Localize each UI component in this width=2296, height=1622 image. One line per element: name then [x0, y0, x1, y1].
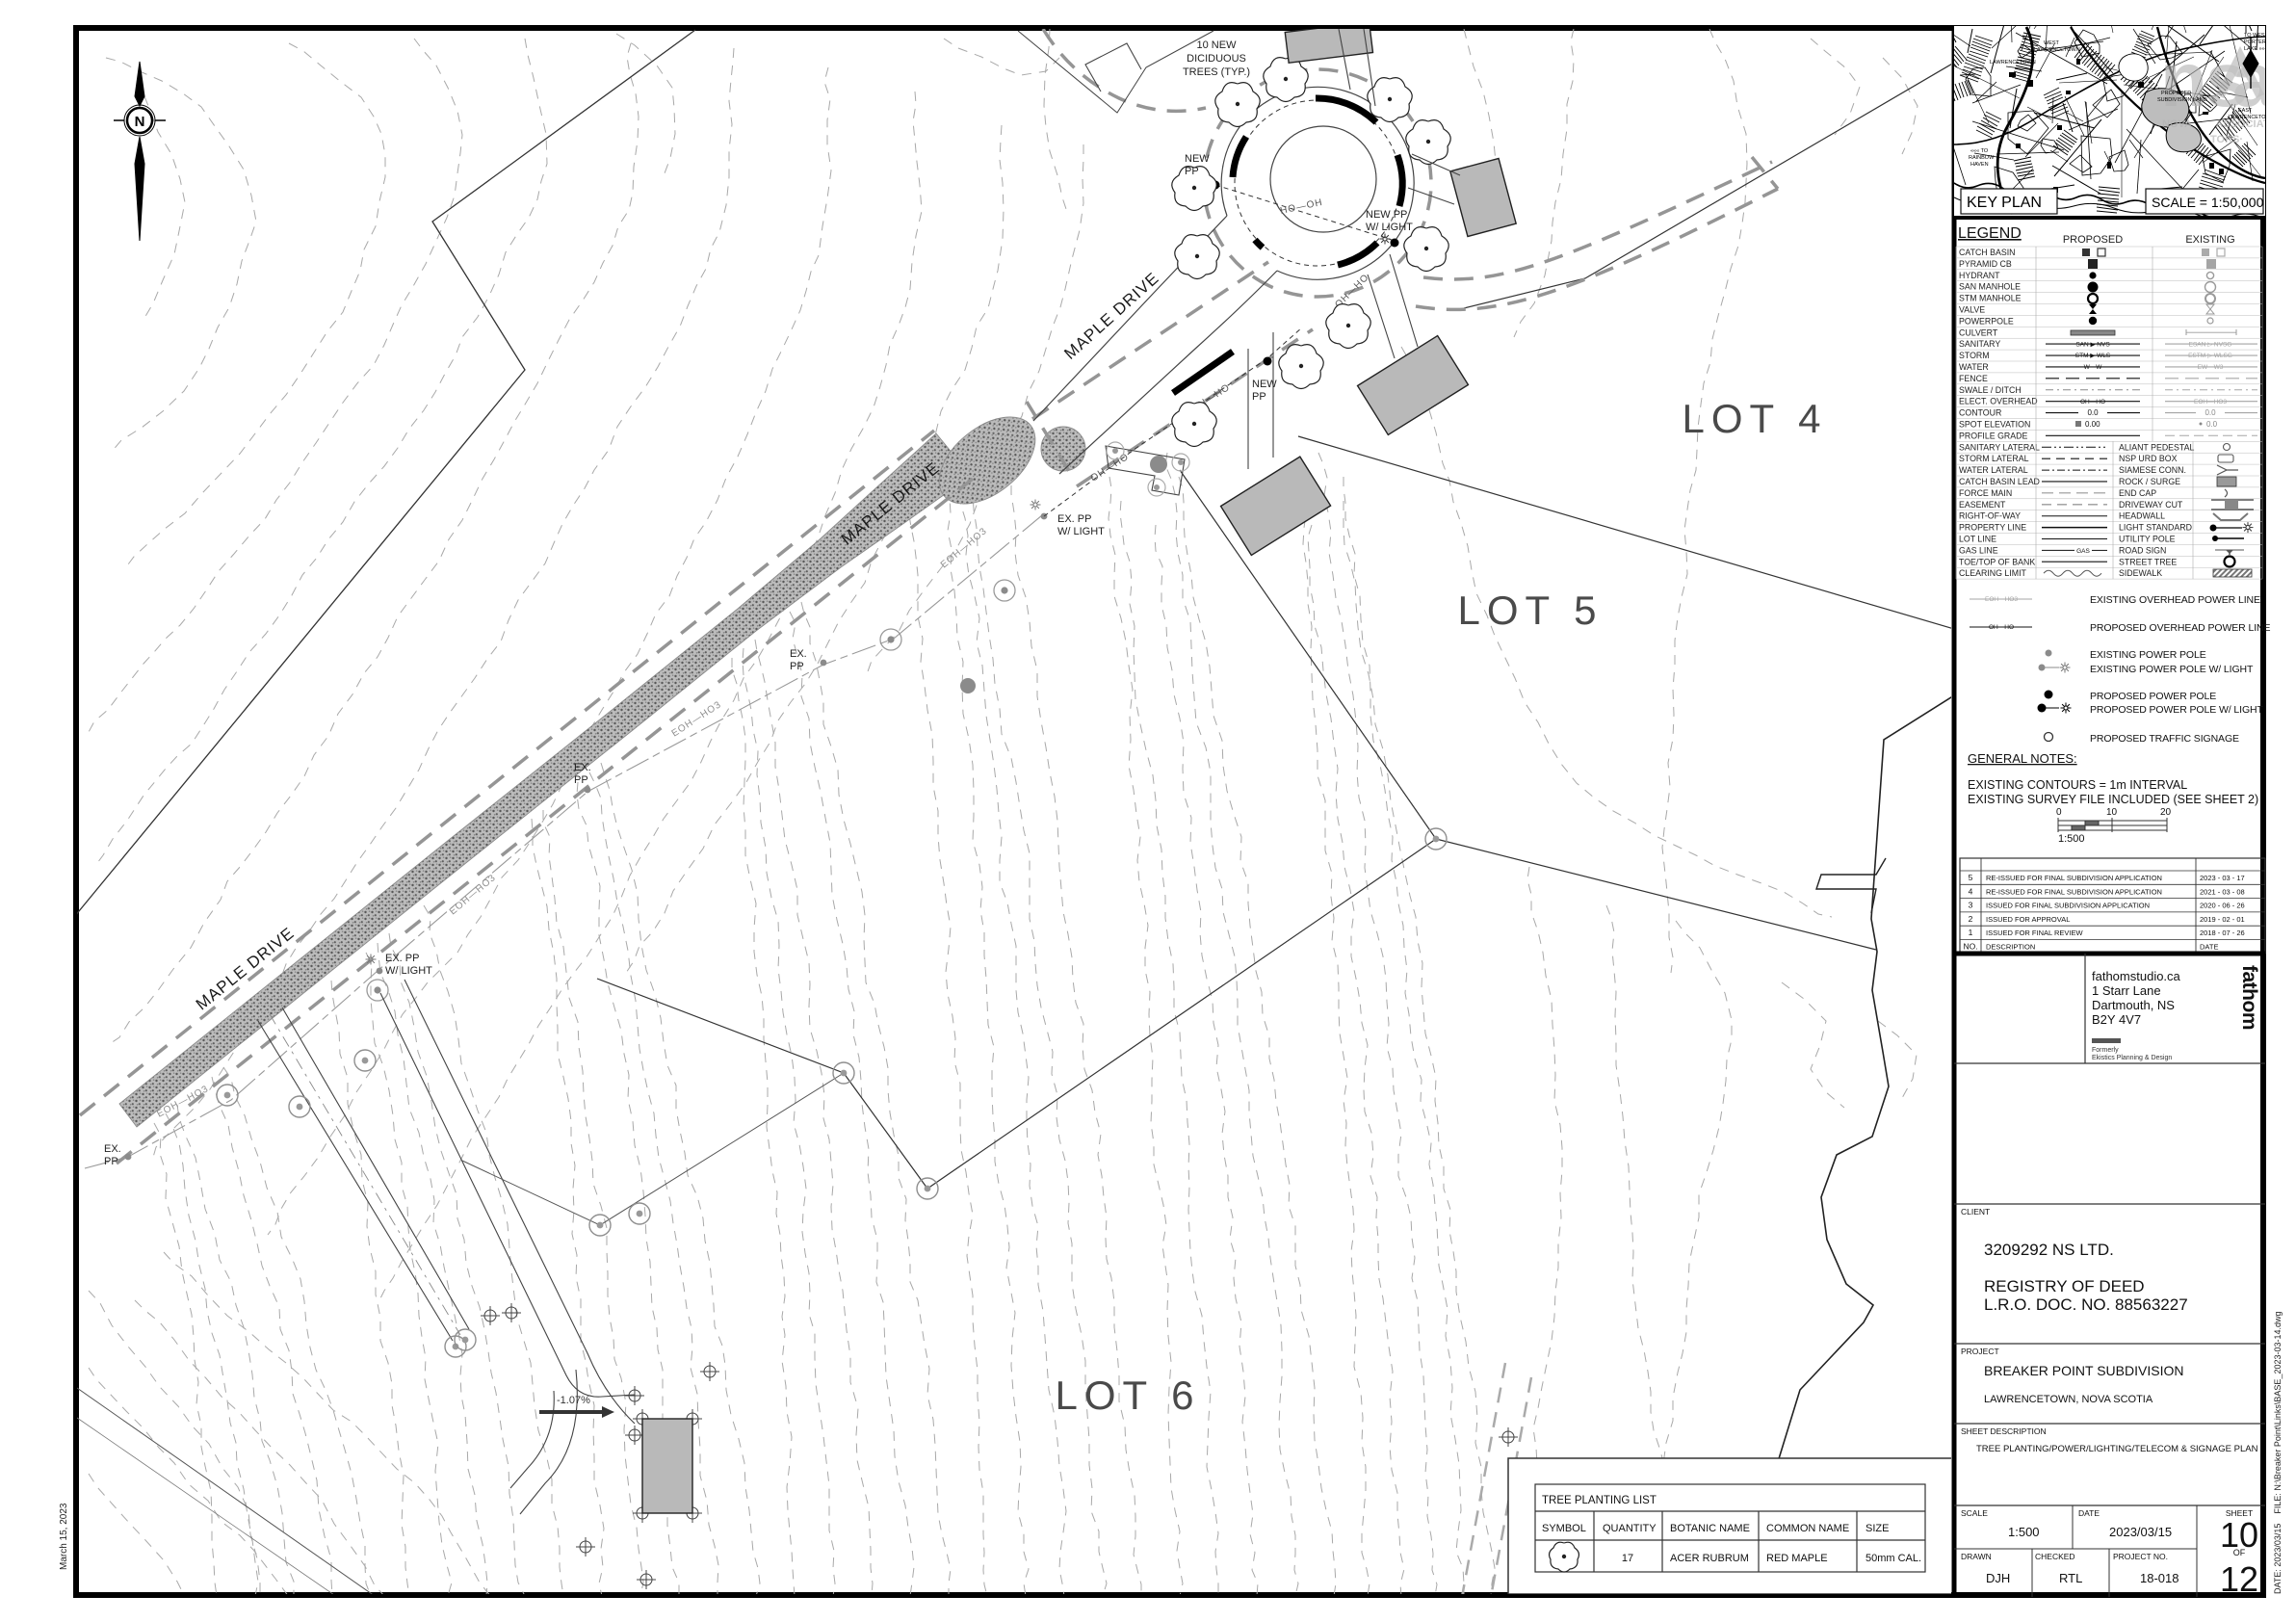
svg-text:DESCRIPTION: DESCRIPTION [1986, 943, 2035, 952]
svg-text:50mm CAL.: 50mm CAL. [1865, 1553, 1921, 1564]
svg-text:RE-ISSUED FOR FINAL SUBDIVISIO: RE-ISSUED FOR FINAL SUBDIVISION APPLICAT… [1986, 887, 2162, 896]
svg-text:2020 - 06 - 26: 2020 - 06 - 26 [2200, 902, 2245, 910]
svg-text:LOT 5: LOT 5 [1458, 588, 1604, 633]
svg-text:CLEARING LIMIT: CLEARING LIMIT [1959, 568, 2027, 578]
svg-text:PROJECT NO.: PROJECT NO. [2113, 1552, 2168, 1561]
svg-text:NEW PP: NEW PP [1366, 209, 1407, 221]
svg-text:L.R.O. DOC. NO. 88563227: L.R.O. DOC. NO. 88563227 [1984, 1295, 2188, 1314]
svg-text:DICIDUOUS: DICIDUOUS [1187, 53, 1246, 65]
svg-text:PROPOSED: PROPOSED [2063, 234, 2123, 246]
svg-text:March 15, 2023: March 15, 2023 [59, 1503, 69, 1570]
svg-text:3209292 NS LTD.: 3209292 NS LTD. [1984, 1241, 2114, 1259]
svg-text:2023/03/15: 2023/03/15 [2109, 1525, 2172, 1539]
svg-text:CONTOUR: CONTOUR [1959, 408, 2001, 418]
svg-text:RTL: RTL [2059, 1571, 2082, 1585]
svg-text:SHEET DESCRIPTION: SHEET DESCRIPTION [1961, 1426, 2047, 1436]
svg-text:1: 1 [1969, 928, 1973, 937]
svg-text:ISSUED FOR FINAL REVIEW: ISSUED FOR FINAL REVIEW [1986, 929, 2083, 937]
svg-text:PP: PP [790, 661, 804, 672]
svg-text:W/ LIGHT: W/ LIGHT [1366, 222, 1413, 233]
svg-text:SANITARY LATERAL: SANITARY LATERAL [1959, 442, 2040, 452]
svg-text:0.0: 0.0 [2205, 408, 2216, 417]
svg-text:-1.07%: -1.07% [557, 1395, 590, 1406]
svg-text:REGISTRY OF DEED: REGISTRY OF DEED [1984, 1277, 2145, 1295]
svg-text:HEADWALL: HEADWALL [2119, 511, 2165, 521]
svg-text:CULVERT: CULVERT [1959, 327, 1998, 337]
svg-text:LAWRENCETOWN: LAWRENCETOWN [2034, 47, 2080, 53]
svg-text:1:500: 1:500 [2008, 1525, 2040, 1539]
svg-text:NEW: NEW [1252, 379, 1277, 390]
svg-text:2: 2 [1969, 914, 1973, 924]
svg-text:PP: PP [1252, 391, 1266, 403]
svg-text:LAWRENCETOWN: LAWRENCETOWN [1990, 60, 2036, 65]
svg-text:PP: PP [1185, 166, 1199, 177]
svg-text:W/ LIGHT: W/ LIGHT [1057, 526, 1105, 537]
svg-text:PROFILE GRADE: PROFILE GRADE [1959, 431, 2027, 440]
svg-text:STM MANHOLE: STM MANHOLE [1959, 294, 2022, 303]
svg-text:SIAMESE CONN.: SIAMESE CONN. [2119, 465, 2186, 475]
svg-text:ESTM ▷ WLSG: ESTM ▷ WLSG [2188, 353, 2232, 359]
svg-text:EX. PP: EX. PP [1057, 513, 1091, 525]
svg-text:ISSUED FOR APPROVAL: ISSUED FOR APPROVAL [1986, 915, 2070, 924]
svg-text:SAN ▶ NVS: SAN ▶ NVS [2075, 341, 2110, 348]
svg-text:5: 5 [1969, 873, 1973, 882]
svg-text:ISSUED FOR FINAL SUBDIVISION A: ISSUED FOR FINAL SUBDIVISION APPLICATION [1986, 902, 2150, 910]
svg-text:Formerly: Formerly [2092, 1047, 2119, 1054]
svg-text:DJH: DJH [1986, 1571, 2010, 1585]
svg-text:BREAKER POINT SUBDIVISION: BREAKER POINT SUBDIVISION [1984, 1363, 2183, 1378]
svg-text:END CAP: END CAP [2119, 488, 2156, 498]
svg-text:SUBDIVISION LAND: SUBDIVISION LAND [2157, 97, 2207, 103]
svg-text:PROPOSED POWER POLE: PROPOSED POWER POLE [2090, 691, 2216, 702]
svg-text:QUANTITY: QUANTITY [1603, 1523, 1657, 1534]
svg-text:SCALE = 1:50,000: SCALE = 1:50,000 [2152, 195, 2264, 210]
svg-text:17: 17 [1622, 1553, 1633, 1564]
svg-text:GAS: GAS [2076, 548, 2090, 555]
svg-text:EX. PP: EX. PP [385, 953, 419, 964]
svg-text:DRIVEWAY CUT: DRIVEWAY CUT [2119, 500, 2183, 510]
svg-text:CLIENT: CLIENT [1961, 1207, 1990, 1216]
svg-text:POWERPOLE: POWERPOLE [1959, 316, 2014, 326]
svg-text:SYMBOL: SYMBOL [1542, 1523, 1586, 1534]
svg-text:EW—W3: EW—W3 [2198, 364, 2224, 371]
svg-text:RE-ISSUED FOR FINAL SUBDIVISIO: RE-ISSUED FOR FINAL SUBDIVISION APPLICAT… [1986, 874, 2162, 882]
svg-text:UTILITY POLE: UTILITY POLE [2119, 535, 2176, 544]
svg-text:EX.: EX. [104, 1143, 121, 1155]
svg-text:PYRAMID CB: PYRAMID CB [1959, 259, 2012, 269]
svg-text:NO.: NO. [1963, 942, 1977, 952]
svg-text:DRAWN: DRAWN [1961, 1552, 1992, 1561]
svg-text:SWALE / DITCH: SWALE / DITCH [1959, 385, 2022, 395]
svg-text:EASEMENT: EASEMENT [1959, 500, 2006, 510]
svg-text:PP: PP [574, 774, 588, 786]
svg-text:PP: PP [104, 1156, 118, 1167]
svg-text:2019 - 02 - 01: 2019 - 02 - 01 [2200, 915, 2245, 924]
svg-text:EXISTING POWER POLE: EXISTING POWER POLE [2090, 649, 2206, 661]
svg-text:ROAD SIGN: ROAD SIGN [2119, 545, 2166, 555]
svg-text:STORM LATERAL: STORM LATERAL [1959, 454, 2029, 463]
svg-text:EOH—HO3: EOH—HO3 [2194, 399, 2227, 405]
svg-text:OH—HO: OH—HO [1989, 624, 2014, 631]
svg-text:3: 3 [1969, 901, 1973, 910]
svg-text:LEGEND: LEGEND [1958, 225, 2022, 242]
svg-text:EAST: EAST [2238, 108, 2253, 114]
svg-text:BOTANIC NAME: BOTANIC NAME [1670, 1523, 1750, 1534]
svg-text:PROJECT: PROJECT [1961, 1347, 1999, 1356]
svg-text:0.0: 0.0 [2087, 408, 2099, 417]
svg-text:OH—HO: OH—HO [2080, 399, 2105, 405]
svg-text:PROPOSED POWER POLE W/ LIGHT: PROPOSED POWER POLE W/ LIGHT [2090, 704, 2263, 716]
svg-text:EXISTING CONTOURS = 1m INTERVA: EXISTING CONTOURS = 1m INTERVAL [1968, 778, 2187, 792]
svg-text:20: 20 [2160, 807, 2172, 818]
svg-text:0.0: 0.0 [2206, 420, 2218, 429]
svg-text:TREES (TYP.): TREES (TYP.) [1183, 66, 1250, 78]
svg-text:EXISTING OVERHEAD POWER LINE: EXISTING OVERHEAD POWER LINE [2090, 594, 2260, 606]
svg-text:WATER LATERAL: WATER LATERAL [1959, 465, 2028, 475]
svg-text:W—W: W—W [2084, 364, 2103, 371]
svg-text:STM ▶ WLS: STM ▶ WLS [2075, 353, 2111, 359]
svg-text:SIZE: SIZE [1865, 1523, 1889, 1534]
svg-text:ESAN ▷ NVSG: ESAN ▷ NVSG [2189, 341, 2232, 348]
svg-text:Ekistics Planning & Design: Ekistics Planning & Design [2092, 1055, 2172, 1061]
svg-text:FENCE: FENCE [1959, 374, 1988, 383]
svg-text:SIDEWALK: SIDEWALK [2119, 568, 2162, 578]
svg-text:18-018: 18-018 [2140, 1571, 2179, 1585]
svg-text:EX.: EX. [790, 648, 807, 660]
svg-text:CATCH BASIN LEAD: CATCH BASIN LEAD [1959, 477, 2040, 486]
svg-text:B2Y 4V7: B2Y 4V7 [2092, 1012, 2141, 1027]
svg-text:COMMON NAME: COMMON NAME [1766, 1523, 1849, 1534]
svg-text:DATE: DATE [2078, 1508, 2100, 1518]
svg-text:fathom: fathom [2238, 965, 2260, 1030]
svg-text:TORS·: TORS· [2210, 134, 2243, 145]
svg-text:TOE/TOP OF BANK: TOE/TOP OF BANK [1959, 557, 2035, 566]
svg-text:OF: OF [2233, 1548, 2246, 1557]
svg-text:RAINBOW: RAINBOW [1969, 155, 1995, 161]
svg-text:SPOT ELEVATION: SPOT ELEVATION [1959, 420, 2030, 430]
svg-text:DATE: 2023/03/15 FILE: N:\B: DATE: 2023/03/15 FILE: N:\Breaker Point\… [2273, 1312, 2283, 1595]
svg-text:N: N [135, 114, 145, 130]
svg-text:PROPERTY LINE: PROPERTY LINE [1959, 523, 2026, 533]
svg-text:1:500: 1:500 [2058, 833, 2085, 845]
svg-text:ELECT. OVERHEAD: ELECT. OVERHEAD [1959, 397, 2038, 406]
svg-text:WEST: WEST [2044, 40, 2060, 46]
svg-text:FORCE MAIN: FORCE MAIN [1959, 488, 2012, 498]
svg-text:LAWRENCETOWN, NOVA SCOTIA: LAWRENCETOWN, NOVA SCOTIA [1984, 1394, 2153, 1405]
svg-text:ACER RUBRUM: ACER RUBRUM [1670, 1553, 1749, 1564]
svg-text:KEY PLAN: KEY PLAN [1967, 195, 2042, 211]
svg-text:PROPOSED TRAFFIC SIGNAGE: PROPOSED TRAFFIC SIGNAGE [2090, 733, 2239, 745]
svg-text:4: 4 [1969, 886, 1973, 896]
svg-text:RED MAPLE: RED MAPLE [1766, 1553, 1828, 1564]
svg-text:10 NEW: 10 NEW [1197, 39, 1238, 51]
svg-text:STREET TREE: STREET TREE [2119, 557, 2177, 566]
svg-text:WATER: WATER [1959, 362, 1989, 372]
svg-text:GENERAL NOTES:: GENERAL NOTES: [1968, 751, 2077, 766]
svg-text:TREE PLANTING/POWER/LIGHTING/T: TREE PLANTING/POWER/LIGHTING/TELECOM & S… [1976, 1444, 2258, 1454]
svg-text:LOT LINE: LOT LINE [1959, 535, 1996, 544]
svg-text:1 Starr Lane: 1 Starr Lane [2092, 983, 2161, 998]
svg-text:PROPOSED OVERHEAD POWER LINE: PROPOSED OVERHEAD POWER LINE [2090, 622, 2271, 634]
svg-text:STORM: STORM [1959, 351, 1990, 360]
svg-text:2021 - 03 - 08: 2021 - 03 - 08 [2200, 887, 2245, 896]
svg-text:PROPOSED: PROPOSED [2161, 91, 2191, 96]
svg-text:EXISTING POWER POLE W/ LIGHT: EXISTING POWER POLE W/ LIGHT [2090, 664, 2254, 675]
svg-text:12: 12 [2220, 1559, 2258, 1599]
svg-text:10: 10 [2106, 807, 2118, 818]
svg-text:SCALE: SCALE [1961, 1508, 1988, 1518]
svg-text:Dartmouth, NS: Dartmouth, NS [2092, 998, 2175, 1012]
svg-text:LOT 6: LOT 6 [1056, 1373, 1201, 1418]
svg-text:0: 0 [2056, 807, 2062, 818]
svg-text:fathomstudio.ca: fathomstudio.ca [2092, 969, 2181, 983]
svg-text:EOH—HO3: EOH—HO3 [1985, 596, 2018, 603]
svg-text:EXISTING: EXISTING [2185, 234, 2234, 246]
svg-text:DATE: DATE [2200, 943, 2218, 952]
svg-text:CATCH BASIN: CATCH BASIN [1959, 248, 2016, 257]
svg-text:HAVEN: HAVEN [1970, 162, 1989, 168]
svg-text:LAKE »»»: LAKE »»» [2244, 46, 2268, 52]
svg-text:LIGHT STANDARD: LIGHT STANDARD [2119, 523, 2192, 533]
svg-text:2023 - 03 - 17: 2023 - 03 - 17 [2200, 874, 2245, 882]
svg-text:LOT 4: LOT 4 [1683, 396, 1828, 441]
svg-text:2018 - 07 - 26: 2018 - 07 - 26 [2200, 929, 2245, 937]
svg-text:CHECKED: CHECKED [2035, 1552, 2075, 1561]
svg-text:NSP URD BOX: NSP URD BOX [2119, 454, 2178, 463]
svg-text:ALIANT PEDESTAL: ALIANT PEDESTAL [2119, 442, 2194, 452]
svg-text:NEW: NEW [1185, 153, 1210, 165]
svg-text:««« TO: ««« TO [1970, 148, 1989, 154]
svg-text:RIGHT-OF-WAY: RIGHT-OF-WAY [1959, 511, 2021, 521]
svg-text:TREE PLANTING LIST: TREE PLANTING LIST [1542, 1495, 1657, 1506]
svg-text:GAS LINE: GAS LINE [1959, 545, 1998, 555]
svg-text:TO WEST: TO WEST [2244, 33, 2269, 39]
svg-text:W/ LIGHT: W/ LIGHT [385, 965, 432, 977]
svg-text:0.00: 0.00 [2085, 420, 2100, 429]
svg-text:SAN MANHOLE: SAN MANHOLE [1959, 282, 2021, 292]
svg-text:VALVE: VALVE [1959, 305, 1985, 315]
svg-text:ROCK / SURGE: ROCK / SURGE [2119, 477, 2180, 486]
svg-text:HYDRANT: HYDRANT [1959, 271, 2000, 280]
svg-text:SANITARY: SANITARY [1959, 339, 2000, 349]
svg-text:EX.: EX. [574, 762, 591, 773]
svg-text:EXISTING SURVEY FILE INCLUDED: EXISTING SURVEY FILE INCLUDED (SEE SHEET… [1968, 793, 2258, 806]
